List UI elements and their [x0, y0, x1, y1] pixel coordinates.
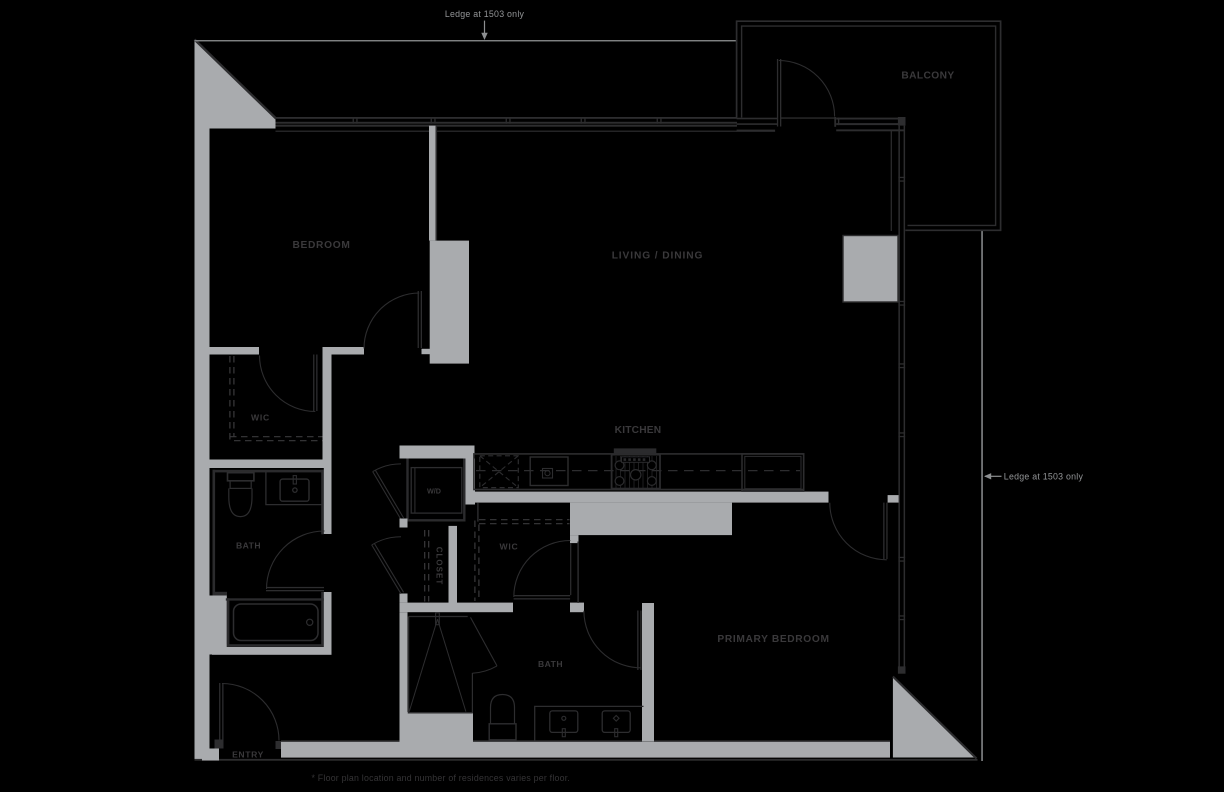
svg-text:CLOSET: CLOSET: [435, 547, 444, 585]
svg-text:* Floor plan location and numb: * Floor plan location and number of resi…: [312, 773, 571, 783]
svg-text:PRIMARY BEDROOM: PRIMARY BEDROOM: [717, 634, 829, 645]
svg-text:BALCONY: BALCONY: [901, 70, 954, 81]
svg-text:Ledge at 1503 only: Ledge at 1503 only: [1004, 471, 1084, 481]
svg-text:ENTRY: ENTRY: [232, 750, 264, 760]
svg-text:BEDROOM: BEDROOM: [292, 240, 350, 251]
svg-text:WIC: WIC: [499, 541, 518, 551]
svg-text:WIC: WIC: [251, 413, 270, 423]
svg-text:Ledge at 1503 only: Ledge at 1503 only: [445, 9, 525, 19]
svg-text:KITCHEN: KITCHEN: [615, 425, 662, 436]
svg-text:LIVING / DINING: LIVING / DINING: [612, 250, 704, 261]
svg-text:BATH: BATH: [236, 541, 261, 551]
svg-text:W/D: W/D: [427, 487, 441, 496]
svg-text:BATH: BATH: [538, 659, 563, 669]
